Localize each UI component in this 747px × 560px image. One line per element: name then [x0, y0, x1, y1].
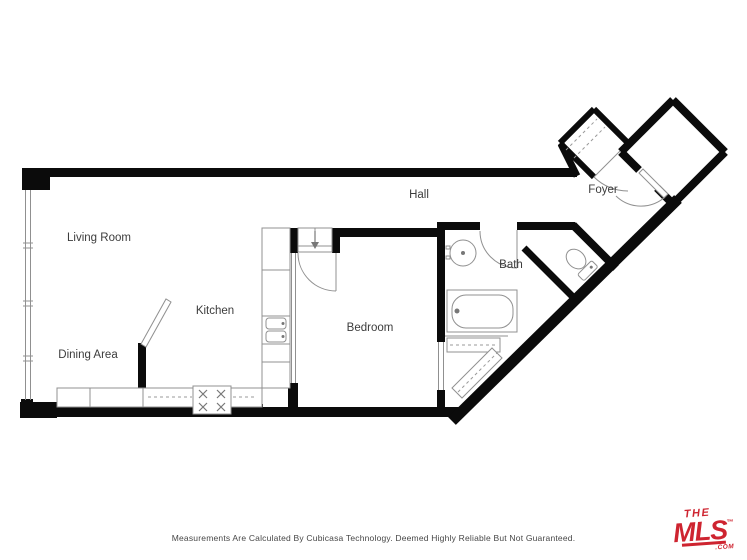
window-mullions [23, 243, 33, 361]
dining-door [141, 299, 171, 347]
kitchen-counter [57, 228, 290, 407]
bedroom-door [298, 253, 336, 291]
bathtub-icon [447, 290, 517, 332]
room-label-bath: Bath [499, 259, 523, 271]
entry-room [621, 100, 725, 204]
bedroom-entry-nook [298, 228, 332, 252]
mls-logo: THE MLS™ .COM [672, 506, 741, 554]
door-arc [298, 253, 336, 291]
room-label-foyer: Foyer [588, 184, 618, 196]
room-label-bedroom: Bedroom [347, 322, 394, 334]
floorplan-drawing: Living Room Dining Area Kitchen Bedroom … [0, 0, 747, 560]
room-label-living-room: Living Room [67, 232, 131, 244]
foyer-closet [560, 109, 628, 191]
entry-door [616, 169, 668, 206]
room-label-dining-area: Dining Area [58, 349, 118, 361]
measurement-disclaimer: Measurements Are Calculated By Cubicasa … [0, 533, 747, 543]
bathroom-sink-icon [446, 240, 476, 266]
door-arc [616, 196, 666, 206]
room-label-kitchen: Kitchen [196, 305, 234, 317]
room-label-hall: Hall [409, 189, 429, 201]
window-wall [23, 190, 33, 400]
floorplan-page: Living Room Dining Area Kitchen Bedroom … [0, 0, 747, 560]
exterior-walls [20, 144, 678, 421]
stove-icon [193, 386, 231, 414]
trademark-symbol: ™ [726, 519, 733, 526]
